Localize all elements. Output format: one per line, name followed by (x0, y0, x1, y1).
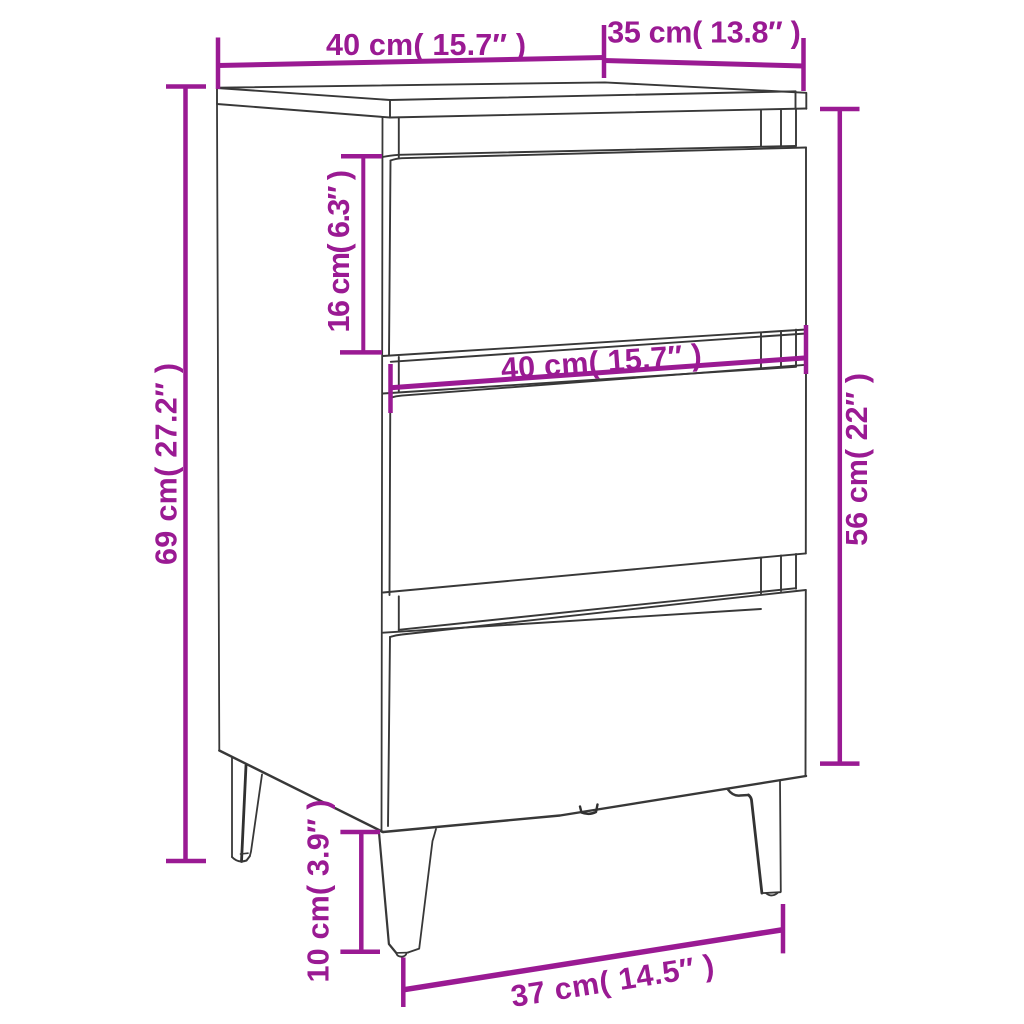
svg-text:10 cm( 3.9″ ): 10 cm( 3.9″ ) (302, 800, 336, 983)
svg-text:56 cm( 22″ ): 56 cm( 22″ ) (840, 373, 874, 546)
svg-text:35 cm( 13.8″ ): 35 cm( 13.8″ ) (607, 16, 801, 50)
svg-text:16 cm( 6.3″ ): 16 cm( 6.3″ ) (322, 170, 356, 333)
svg-text:40 cm( 15.7″ ): 40 cm( 15.7″ ) (326, 28, 526, 62)
svg-text:69 cm( 27.2″ ): 69 cm( 27.2″ ) (150, 363, 184, 565)
